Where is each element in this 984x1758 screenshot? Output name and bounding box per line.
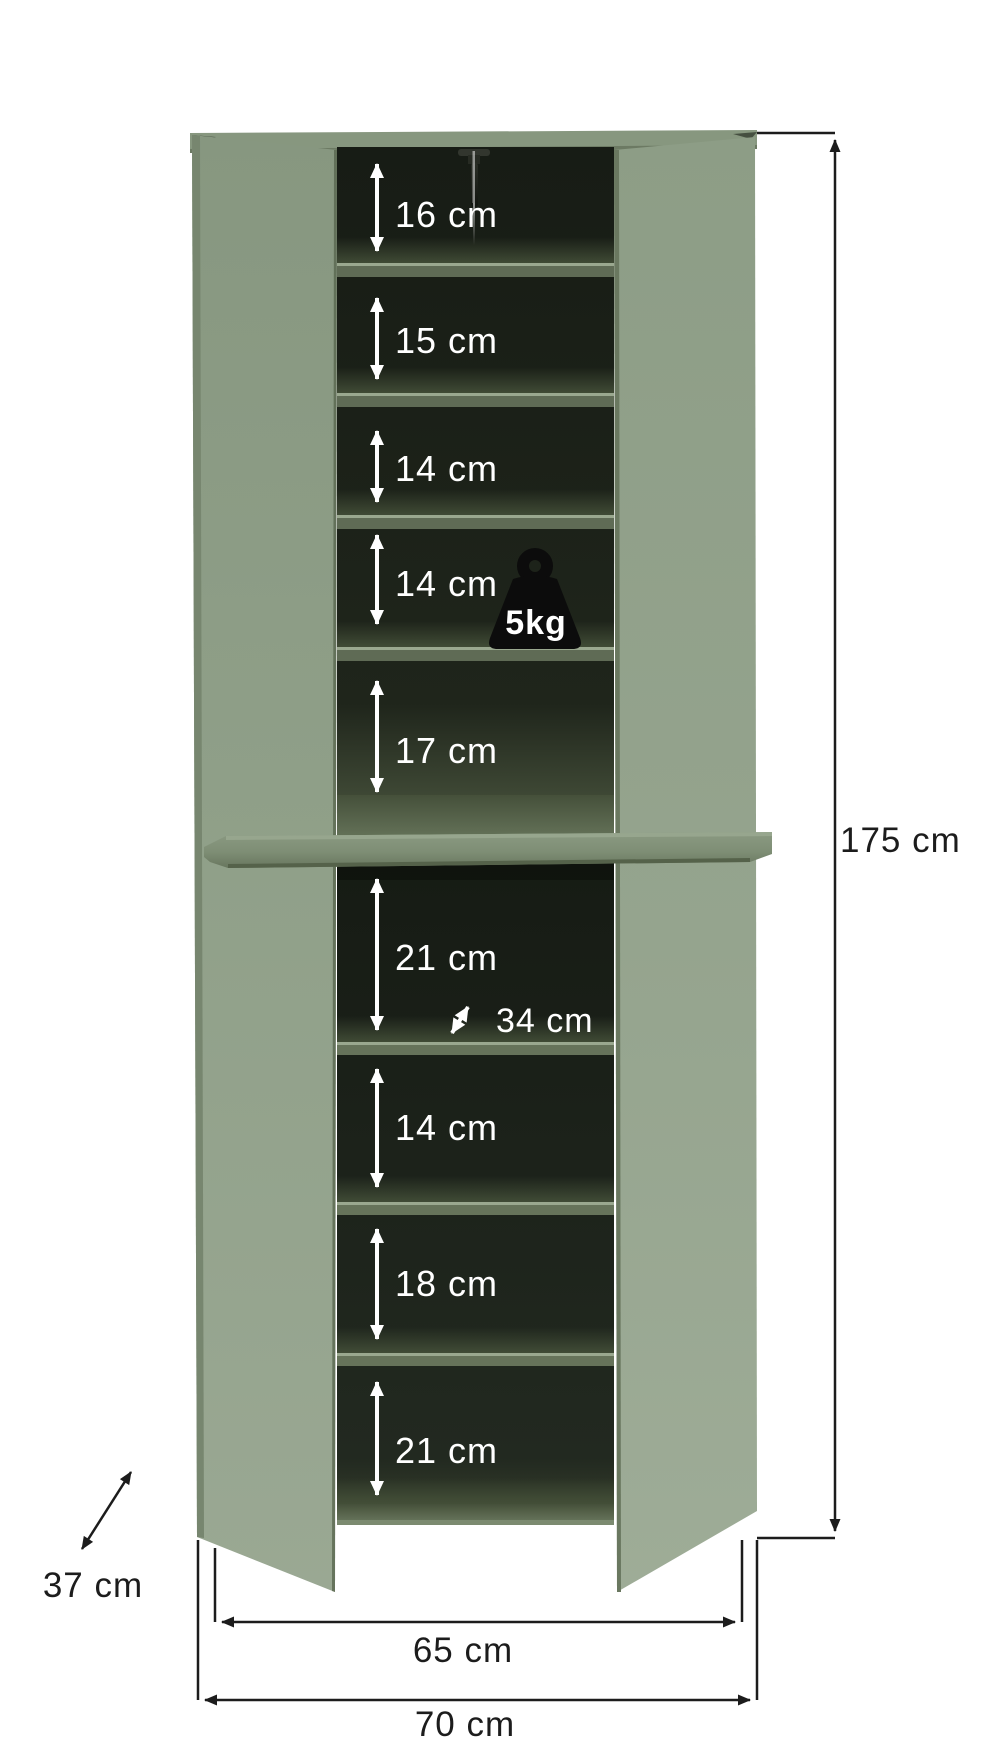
dimension-depth: 37 cm bbox=[43, 1472, 143, 1605]
shelf-board bbox=[337, 515, 614, 538]
section-height-label: 17 cm bbox=[395, 730, 498, 771]
dim-line-diagonal bbox=[82, 1472, 131, 1549]
bottom-unit-floor bbox=[337, 1504, 614, 1522]
furniture-dimension-diagram: 5kg 16 cm 15 cm 14 cm 14 cm 17 cm 21 cm … bbox=[0, 0, 984, 1758]
weight-load-label: 5kg bbox=[505, 604, 567, 642]
shelf-board bbox=[337, 393, 614, 416]
dimension-total-height: 175 cm bbox=[757, 133, 961, 1538]
section-height-label: 15 cm bbox=[395, 320, 498, 361]
section-height-label: 14 cm bbox=[395, 448, 498, 489]
inner-width-label: 65 cm bbox=[413, 1631, 513, 1670]
shelf-board bbox=[337, 647, 614, 670]
section-height-label: 14 cm bbox=[395, 1107, 498, 1148]
depth-label: 37 cm bbox=[43, 1566, 143, 1605]
section-height-label: 21 cm bbox=[395, 1430, 498, 1471]
shelf-depth-label: 34 cm bbox=[496, 1002, 594, 1040]
cabinet-drawing: 5kg 16 cm 15 cm 14 cm 14 cm 17 cm 21 cm … bbox=[0, 0, 984, 1758]
total-height-label: 175 cm bbox=[840, 821, 961, 860]
section-height-label: 14 cm bbox=[395, 563, 498, 604]
shelf-board bbox=[337, 1353, 614, 1375]
shelf-board bbox=[337, 1202, 614, 1224]
outer-width-label: 70 cm bbox=[415, 1705, 515, 1744]
section-height-label: 21 cm bbox=[395, 937, 498, 978]
section-height-label: 16 cm bbox=[395, 194, 498, 235]
shelf-board bbox=[337, 1042, 614, 1064]
middle-divider-shelf bbox=[204, 832, 772, 868]
section-height-label: 18 cm bbox=[395, 1263, 498, 1304]
right-door-open bbox=[614, 137, 757, 1592]
shelf-board bbox=[337, 263, 614, 286]
